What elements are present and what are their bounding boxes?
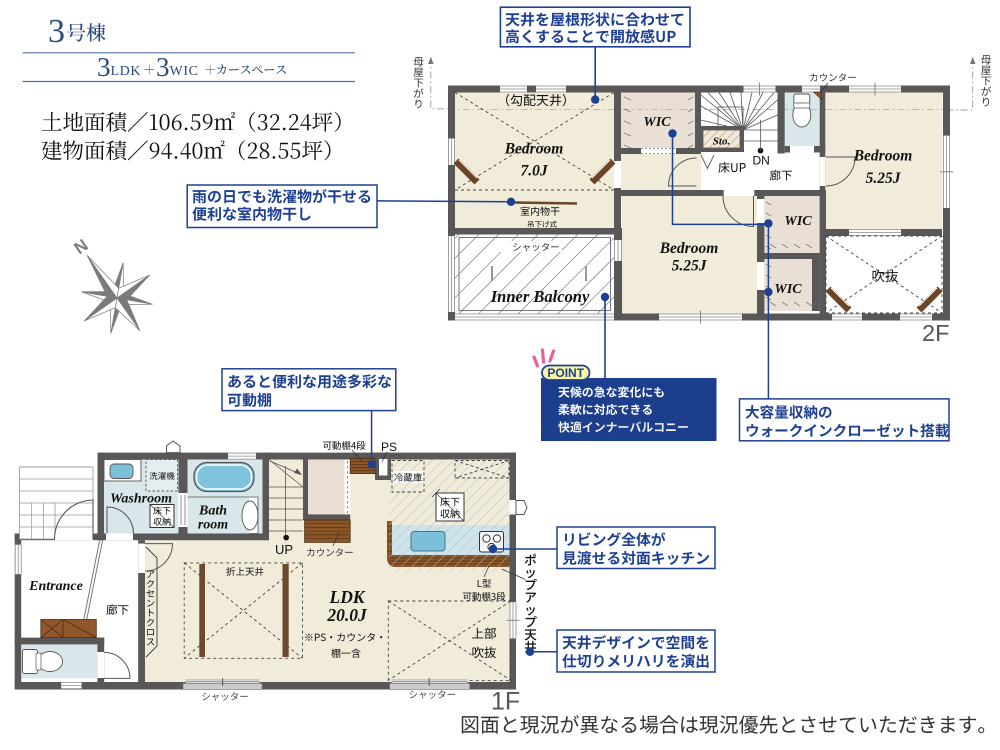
svg-text:1F: 1F bbox=[491, 688, 520, 716]
svg-text:LDK: LDK bbox=[329, 587, 366, 607]
svg-text:Inner Balcony: Inner Balcony bbox=[490, 287, 590, 306]
svg-text:7.0J: 7.0J bbox=[520, 163, 548, 180]
svg-text:3: 3 bbox=[48, 13, 65, 50]
svg-text:Bedroom: Bedroom bbox=[659, 240, 719, 257]
svg-text:WIC: WIC bbox=[774, 282, 802, 297]
svg-text:WIC: WIC bbox=[784, 214, 812, 229]
svg-text:room: room bbox=[198, 518, 228, 533]
svg-text:Entrance: Entrance bbox=[28, 579, 83, 594]
svg-text:UP: UP bbox=[275, 542, 293, 557]
svg-text:2F: 2F bbox=[922, 320, 949, 346]
svg-text:DN: DN bbox=[753, 154, 770, 168]
svg-text:5.25J: 5.25J bbox=[672, 258, 708, 275]
svg-text:PS: PS bbox=[381, 440, 397, 454]
svg-text:Sto.: Sto. bbox=[713, 136, 730, 148]
svg-text:POINT: POINT bbox=[547, 366, 584, 380]
svg-text:5.25J: 5.25J bbox=[866, 170, 902, 187]
svg-text:Bath: Bath bbox=[198, 504, 227, 519]
svg-text:Bedroom: Bedroom bbox=[504, 141, 564, 158]
svg-text:20.0J: 20.0J bbox=[326, 605, 368, 625]
svg-text:Bedroom: Bedroom bbox=[853, 148, 913, 165]
svg-text:WIC: WIC bbox=[643, 115, 671, 130]
